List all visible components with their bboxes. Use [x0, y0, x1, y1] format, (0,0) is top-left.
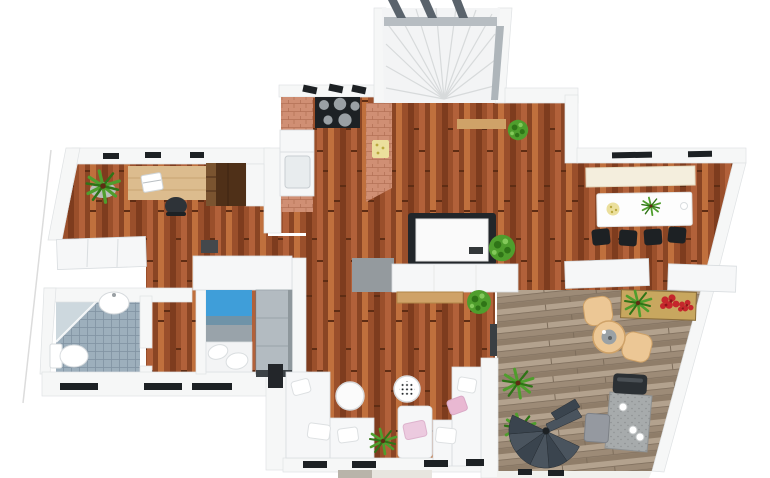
- window-dining: [688, 151, 712, 157]
- terrace-table-cup: [602, 330, 606, 334]
- bed-band-teal: [206, 316, 252, 325]
- stairs-wood-shelf: [457, 119, 506, 129]
- closet-body: [256, 290, 292, 374]
- terrace-bench-left: [565, 259, 650, 289]
- stairs-landing-slab: [384, 17, 497, 26]
- bed-band-gray: [206, 325, 252, 342]
- toilet: [50, 344, 88, 368]
- office-chair-back: [166, 212, 186, 216]
- dining-chair: [643, 228, 662, 245]
- gray-rug: [352, 258, 394, 292]
- fruit-plate: [607, 203, 620, 216]
- dining-chair: [667, 226, 686, 244]
- outdoor-cup: [619, 403, 627, 411]
- tv-panel: [268, 364, 283, 388]
- office-desk: [128, 166, 208, 200]
- window-dining: [612, 152, 652, 159]
- floor-plan-svg: [0, 0, 770, 478]
- window-hall: [190, 152, 204, 158]
- terrace-rail-post: [548, 470, 564, 476]
- white-sideboard: [392, 264, 518, 292]
- stairs-potted-plant: [508, 120, 528, 140]
- window-living: [424, 460, 448, 467]
- window-living: [466, 459, 484, 466]
- terrace-table-center: [608, 336, 612, 340]
- toilet-bowl: [60, 345, 88, 367]
- office-cabinet: [57, 236, 147, 269]
- sofa-pillow-white: [337, 427, 359, 444]
- wall-bedroom-left: [196, 290, 206, 374]
- window-bathroom: [60, 383, 98, 390]
- terrace-doorframe-mark: [469, 247, 483, 254]
- center-table-top: [416, 219, 488, 261]
- wall-dining-top: [577, 148, 746, 163]
- wall-dining-left-stub: [565, 95, 578, 163]
- dotted-side-table-pattern: [399, 381, 415, 397]
- gray-outdoor-chair: [584, 413, 610, 443]
- bed: [206, 290, 252, 372]
- terrace-door-threshold: [490, 324, 497, 356]
- hall-wardrobe-side: [206, 163, 216, 206]
- balcony-strip-light: [372, 470, 432, 478]
- terrace-bench-right: [668, 264, 737, 292]
- wood-bench: [397, 292, 463, 303]
- closet-edge-shade: [288, 290, 292, 374]
- bedroom-closet: [256, 290, 292, 377]
- dining-chair: [618, 229, 637, 246]
- wall-niche-right: [246, 164, 264, 206]
- bedroom-wall-closet-band: [193, 256, 292, 290]
- window-office: [145, 152, 161, 158]
- sofa-pillow-white: [457, 377, 477, 394]
- cutting-board: [372, 140, 389, 158]
- outdoor-cup: [629, 426, 637, 434]
- round-shrub: [467, 290, 491, 314]
- dining-window-bench: [586, 166, 695, 187]
- bedroom: [206, 290, 292, 377]
- kitchen-sink-basin: [285, 156, 310, 188]
- spiral-center-pole: [543, 428, 550, 435]
- window-office: [103, 153, 119, 159]
- terrace-rail-post: [518, 469, 532, 475]
- window-living: [303, 461, 327, 468]
- granite-outdoor-table: [605, 392, 652, 452]
- wall-hall-kitchen: [264, 148, 281, 233]
- wall-office-top: [72, 148, 270, 164]
- balcony-strip-dark: [338, 470, 372, 478]
- window-corridor: [144, 383, 182, 390]
- window-bedroom: [192, 383, 232, 390]
- wall-bedroom-right: [292, 258, 306, 376]
- washbasin-faucet: [112, 293, 116, 297]
- outdoor-cup: [636, 433, 644, 441]
- sofa-pillow-white: [435, 427, 456, 444]
- bed-headboard-blue: [206, 290, 252, 316]
- dark-outdoor-chair: [612, 373, 647, 395]
- wall-bathroom-right-upper: [140, 296, 152, 348]
- window-living: [352, 461, 376, 468]
- bedroom-door-threshold: [201, 240, 218, 253]
- round-shrub: [489, 235, 515, 261]
- floor-plan-image: [0, 0, 770, 478]
- coffee-table: [336, 382, 364, 410]
- sofa-pillow-white: [307, 423, 331, 441]
- dining-chair: [591, 228, 611, 246]
- dining-cup: [681, 203, 688, 210]
